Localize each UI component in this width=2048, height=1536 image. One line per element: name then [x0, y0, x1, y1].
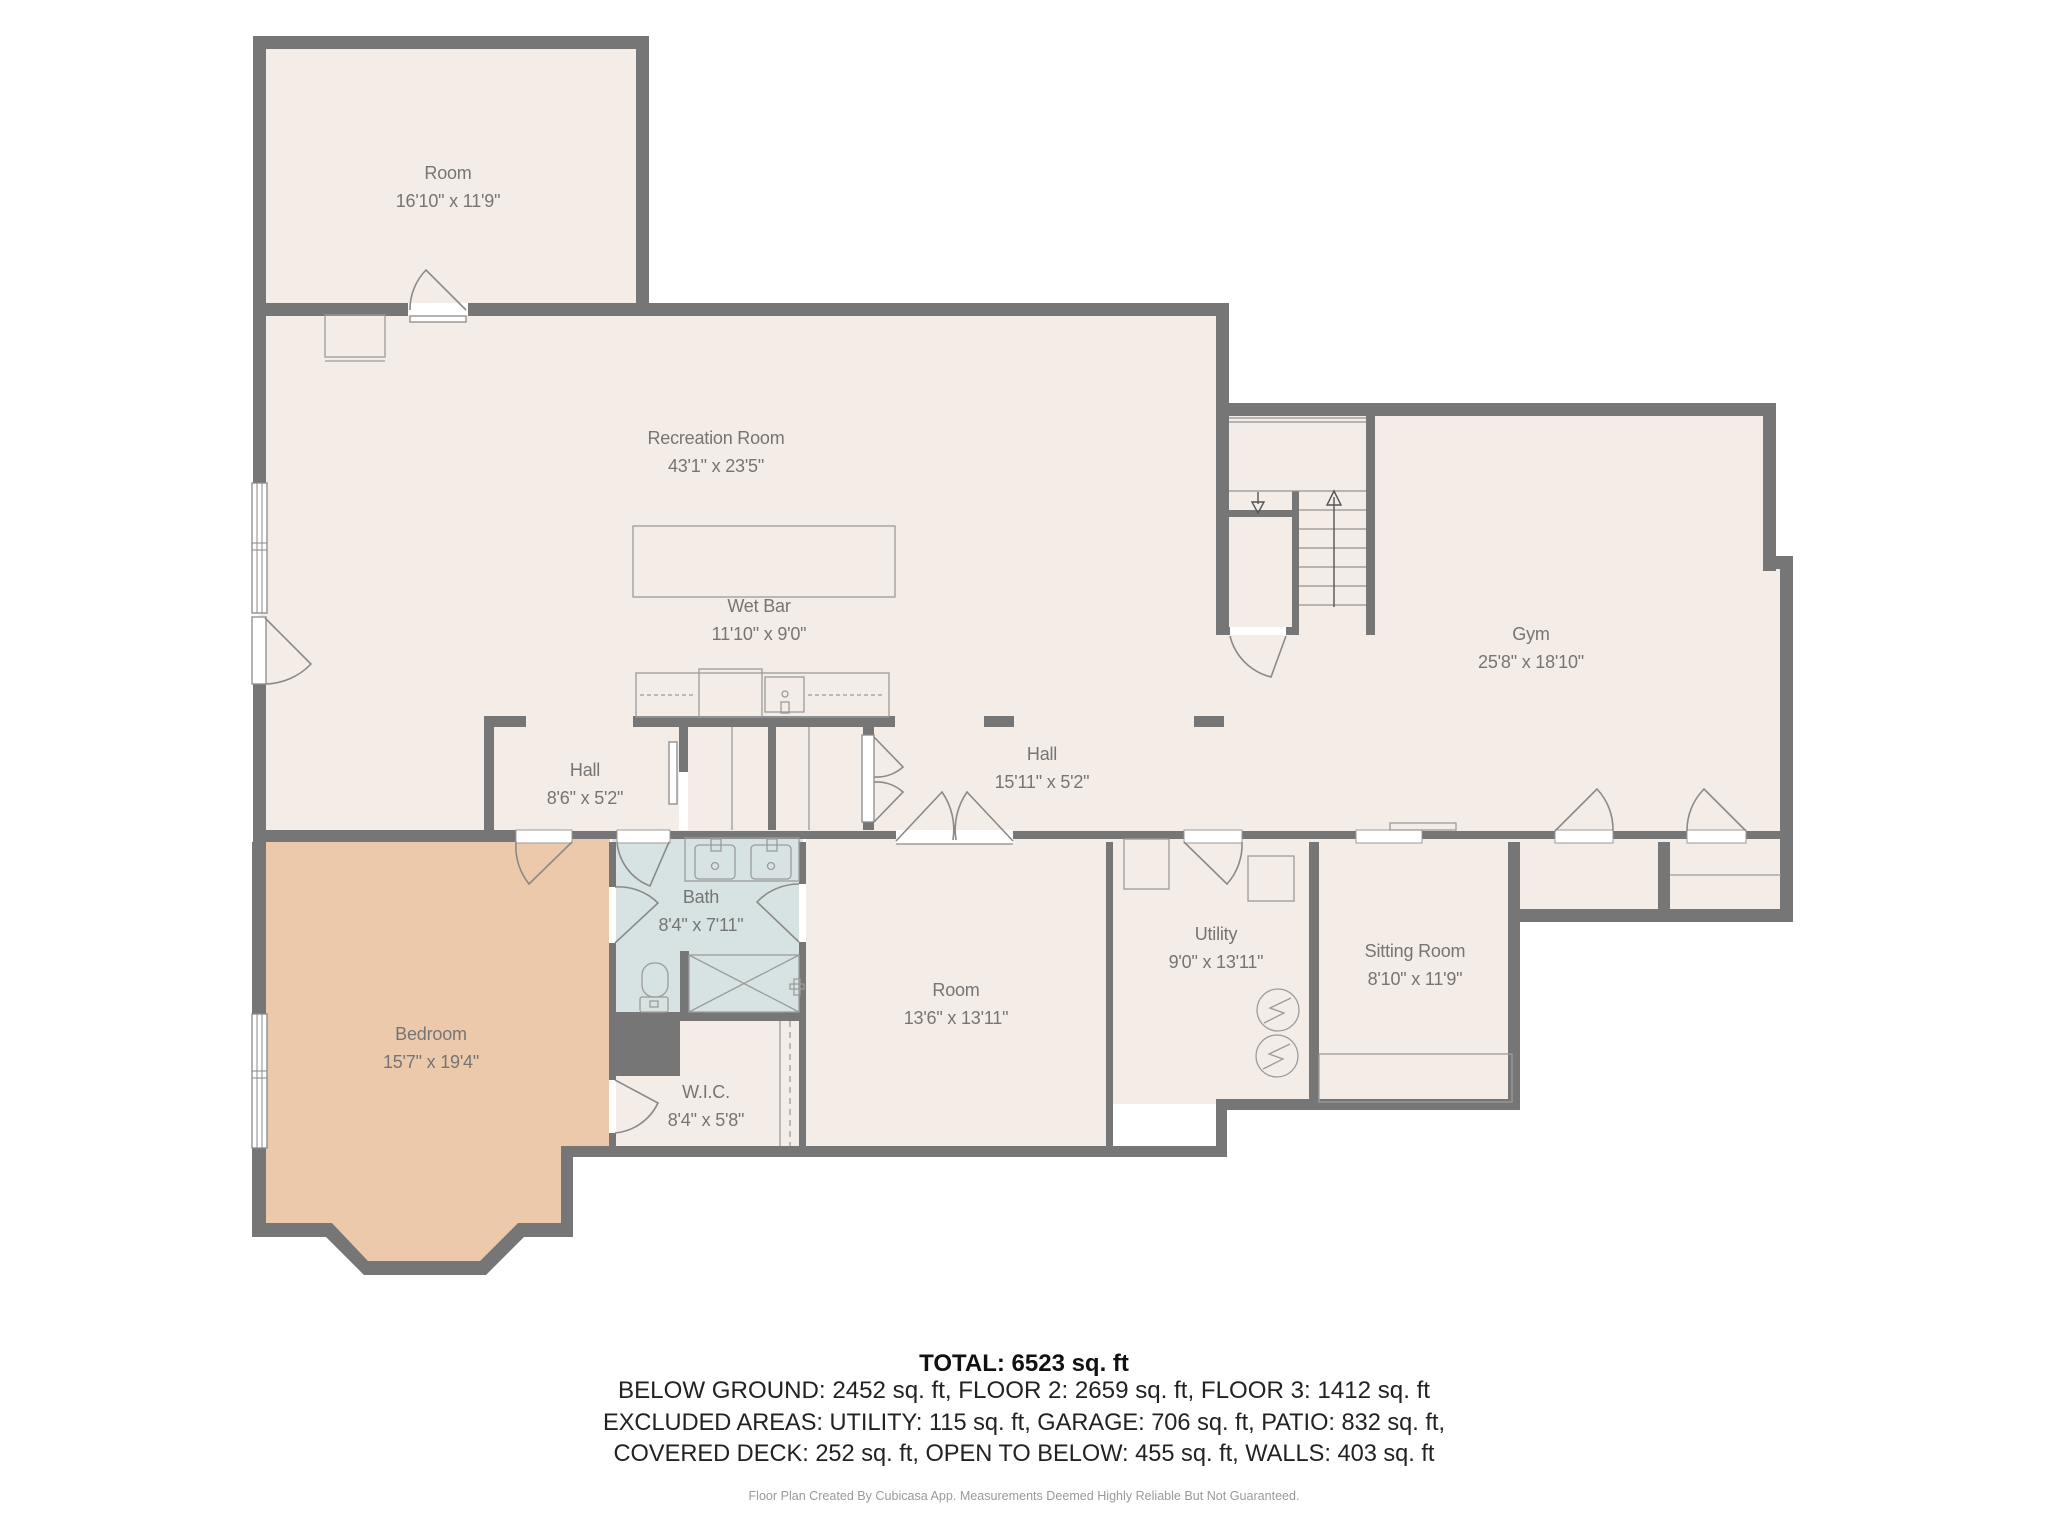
svg-text:8'4" x 5'8": 8'4" x 5'8" [668, 1110, 745, 1130]
svg-text:Hall: Hall [570, 760, 600, 780]
svg-text:Bedroom: Bedroom [395, 1024, 467, 1044]
svg-text:Floor Plan Created By Cubicasa: Floor Plan Created By Cubicasa App. Meas… [749, 1488, 1300, 1503]
svg-text:9'0" x 13'11": 9'0" x 13'11" [1169, 952, 1264, 972]
svg-text:Utility: Utility [1195, 924, 1238, 944]
svg-text:8'10" x 11'9": 8'10" x 11'9" [1368, 969, 1463, 989]
svg-text:25'8" x 18'10": 25'8" x 18'10" [1478, 652, 1584, 672]
svg-text:Gym: Gym [1512, 624, 1549, 644]
svg-text:TOTAL: 6523 sq. ft: TOTAL: 6523 sq. ft [919, 1350, 1129, 1377]
svg-text:43'1" x 23'5": 43'1" x 23'5" [668, 456, 764, 476]
svg-text:8'4" x 7'11": 8'4" x 7'11" [659, 915, 744, 935]
svg-text:Bath: Bath [683, 887, 719, 907]
svg-text:COVERED DECK: 252 sq. ft, OPEN: COVERED DECK: 252 sq. ft, OPEN TO BELOW:… [614, 1440, 1435, 1467]
svg-text:16'10" x 11'9": 16'10" x 11'9" [396, 191, 501, 211]
svg-text:Hall: Hall [1027, 744, 1057, 764]
svg-text:Wet Bar: Wet Bar [727, 596, 790, 616]
svg-text:11'10" x 9'0": 11'10" x 9'0" [712, 624, 807, 644]
svg-text:W.I.C.: W.I.C. [682, 1082, 730, 1102]
svg-text:Recreation Room: Recreation Room [647, 428, 784, 448]
svg-text:Room: Room [424, 163, 471, 183]
svg-text:15'7" x 19'4": 15'7" x 19'4" [383, 1052, 479, 1072]
svg-text:Sitting Room: Sitting Room [1365, 941, 1466, 961]
svg-text:Room: Room [932, 980, 979, 1000]
svg-text:15'11" x 5'2": 15'11" x 5'2" [995, 772, 1090, 792]
svg-text:8'6" x 5'2": 8'6" x 5'2" [547, 788, 624, 808]
svg-text:EXCLUDED AREAS: UTILITY: 115 s: EXCLUDED AREAS: UTILITY: 115 sq. ft, GAR… [603, 1409, 1445, 1436]
svg-text:BELOW GROUND: 2452 sq. ft, FLO: BELOW GROUND: 2452 sq. ft, FLOOR 2: 2659… [618, 1377, 1430, 1404]
svg-text:13'6" x 13'11": 13'6" x 13'11" [904, 1008, 1009, 1028]
